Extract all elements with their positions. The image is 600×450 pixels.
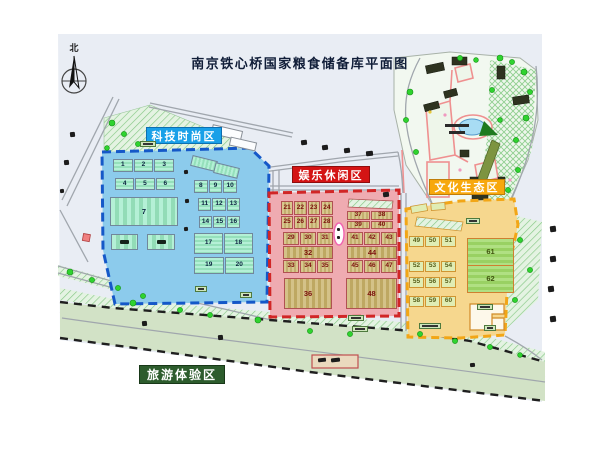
building-48: 48	[346, 278, 397, 309]
illegible-character-mark	[470, 363, 475, 368]
building-60: 60	[441, 296, 456, 307]
ent-buildings-33-35: 333435	[283, 260, 333, 273]
building-50: 50	[425, 236, 440, 247]
building-13: 13	[227, 198, 240, 211]
building-24: 24	[321, 201, 333, 215]
tech-buildings-17-18: 1718	[194, 233, 253, 254]
building-54: 54	[441, 261, 456, 272]
building-19: 19	[194, 257, 224, 274]
building-17: 17	[194, 233, 223, 254]
building-34: 34	[300, 260, 316, 273]
building-4: 4	[115, 178, 134, 190]
ent-buildings-45-47: 454647	[347, 260, 397, 273]
building-6: 6	[156, 178, 175, 190]
building-45: 45	[347, 260, 363, 273]
building-11: 11	[198, 198, 211, 211]
building-12: 12	[212, 198, 225, 211]
illegible-character-mark	[550, 316, 557, 323]
building-33: 33	[283, 260, 299, 273]
illegible-character-mark	[142, 321, 147, 326]
building-40: 40	[371, 221, 394, 230]
illegible-character-mark	[184, 170, 188, 174]
building-35: 35	[317, 260, 333, 273]
cul-buildings-52-54: 525354	[409, 261, 456, 272]
illegible-label	[120, 240, 129, 244]
tech-warehouse-b	[147, 234, 175, 250]
illegible-text-line	[449, 131, 465, 134]
illegible-character-mark	[318, 358, 326, 363]
building-41: 41	[347, 232, 363, 245]
ent-buildings-41-43: 414243	[347, 232, 397, 245]
building-32: 32	[283, 246, 333, 259]
illegible-character-mark	[322, 145, 328, 151]
illegible-character-mark	[550, 226, 557, 233]
building-31: 31	[317, 232, 333, 245]
building-38: 38	[371, 211, 394, 220]
cul-buildings-49-51: 495051	[409, 236, 456, 247]
building-44: 44	[347, 246, 397, 259]
illegible-character-mark	[366, 151, 373, 157]
building-30: 30	[300, 232, 316, 245]
illegible-character-mark	[337, 228, 340, 231]
entertainment-zone-label: 娱乐休闲区	[292, 166, 370, 183]
cul-buildings-55-57: 555657	[409, 277, 456, 288]
north-arrow-icon: 北	[56, 40, 92, 110]
building-55: 55	[409, 277, 424, 288]
illegible-text-line	[445, 124, 469, 127]
illegible-character-mark	[70, 132, 75, 137]
small-label-chip	[419, 323, 441, 329]
tech-buildings-4-6: 456	[115, 178, 175, 190]
illegible-character-mark	[548, 286, 555, 293]
building-9: 9	[209, 180, 223, 193]
building-7: 7	[110, 197, 178, 226]
culture-zone-label: 文化生态区	[429, 179, 505, 195]
building-47: 47	[381, 260, 397, 273]
building-52: 52	[409, 261, 424, 272]
site-plan-page: 南京铁心桥国家粮食储备库平面图 北 科技时尚区 娱乐休闲区 文化生态区 旅游体验…	[0, 0, 600, 450]
illegible-character-mark	[60, 189, 64, 193]
illegible-character-mark	[218, 335, 223, 340]
landmark-oval	[334, 223, 344, 245]
page-title: 南京铁心桥国家粮食储备库平面图	[191, 53, 409, 72]
building-3: 3	[154, 159, 174, 172]
building-22: 22	[294, 201, 306, 215]
ent-buildings-37-40: 37383940	[347, 211, 393, 227]
building-26: 26	[294, 216, 306, 230]
building-27: 27	[308, 216, 320, 230]
building-2: 2	[134, 159, 154, 172]
ent-buildings-21-28: 2122232425262728	[281, 201, 333, 229]
tech-buildings-11-13: 111213	[198, 198, 240, 211]
building-29: 29	[283, 232, 299, 245]
building-14: 14	[199, 216, 212, 228]
building-8: 8	[194, 180, 208, 193]
ent-buildings-29-31: 293031	[283, 232, 333, 245]
building-20: 20	[225, 257, 255, 274]
building-58: 58	[409, 296, 424, 307]
small-label-chip	[466, 218, 480, 224]
tech-warehouse-a	[111, 234, 138, 250]
building-59: 59	[425, 296, 440, 307]
illegible-character-mark	[64, 160, 69, 165]
illegible-character-mark	[383, 192, 389, 198]
building-18: 18	[224, 233, 253, 254]
illegible-character-mark	[184, 227, 188, 231]
tech-buildings-8-10: 8910	[194, 180, 237, 193]
small-label-chip	[352, 326, 368, 332]
building-1: 1	[113, 159, 133, 172]
building-57: 57	[441, 277, 456, 288]
building-46: 46	[364, 260, 380, 273]
small-label-chip	[240, 292, 252, 298]
building-23: 23	[308, 201, 320, 215]
building-16: 16	[227, 216, 240, 228]
building-25: 25	[281, 216, 293, 230]
illegible-label	[157, 240, 166, 244]
small-label-chip	[477, 304, 493, 310]
building-39: 39	[347, 221, 370, 230]
building-56: 56	[425, 277, 440, 288]
building-28: 28	[321, 216, 333, 230]
cul-buildings-58-60: 585960	[409, 296, 456, 307]
building-36: 36	[284, 278, 332, 309]
small-label-chip	[195, 286, 207, 292]
building-21: 21	[281, 201, 293, 215]
building-5: 5	[135, 178, 154, 190]
building-51: 51	[441, 236, 456, 247]
tech-zone-label: 科技时尚区	[146, 127, 222, 144]
building-10: 10	[223, 180, 237, 193]
pink-landmark	[82, 234, 90, 242]
illegible-character-mark	[337, 236, 340, 239]
building-53: 53	[425, 261, 440, 272]
small-label-chip	[348, 315, 364, 321]
building-15: 15	[213, 216, 226, 228]
illegible-character-mark	[550, 256, 557, 263]
building-42: 42	[364, 232, 380, 245]
entertainment-hatch-strip	[348, 199, 393, 209]
tourism-zone-label: 旅游体验区	[139, 365, 225, 384]
building-61: 61	[467, 238, 514, 266]
building-62: 62	[467, 265, 514, 293]
tech-buildings-14-16: 141516	[199, 216, 240, 228]
tech-buildings-1-3: 123	[113, 159, 174, 172]
illegible-character-mark	[185, 199, 189, 203]
small-label-chip	[140, 141, 156, 147]
north-label: 北	[69, 42, 78, 53]
building-37: 37	[347, 211, 370, 220]
illegible-character-mark	[344, 148, 350, 154]
small-label-chip	[484, 325, 496, 331]
illegible-character-mark	[301, 140, 307, 146]
building-49: 49	[409, 236, 424, 247]
building-43: 43	[381, 232, 397, 245]
tech-buildings-19-20: 1920	[194, 257, 254, 274]
